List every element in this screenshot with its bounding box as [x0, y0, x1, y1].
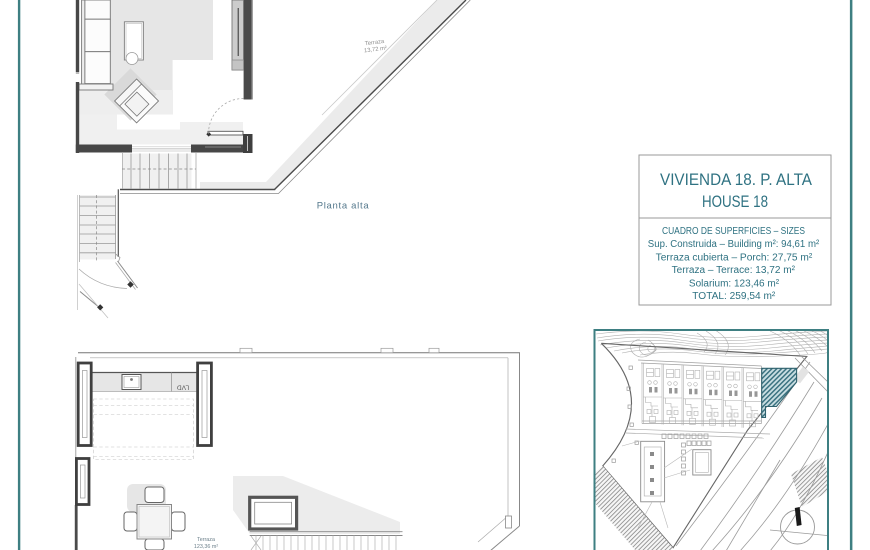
svg-text:HOUSE 18: HOUSE 18: [702, 192, 768, 211]
svg-text:Terraza cubierta – Porch: 27,: Terraza cubierta – Porch: 27,75 m²: [656, 252, 813, 263]
svg-text:Terraza: Terraza: [197, 537, 215, 543]
svg-text:Sup. Construida – Building m²: Sup. Construida – Building m²: 94,61 m²: [648, 239, 820, 250]
svg-text:VIVIENDA 18. P. ALTA: VIVIENDA 18. P. ALTA: [660, 170, 813, 189]
svg-text:LVD: LVD: [177, 384, 189, 391]
svg-text:123,36 m²: 123,36 m²: [194, 544, 218, 550]
svg-text:TOTAL: 259,54 m²: TOTAL: 259,54 m²: [692, 291, 776, 302]
svg-text:CUADRO DE SUPERFICIES – SIZES: CUADRO DE SUPERFICIES – SIZES: [662, 226, 805, 237]
svg-text:Solarium: 123,46 m²: Solarium: 123,46 m²: [689, 279, 780, 290]
svg-text:Terraza – Terrace: 13,72 m²: Terraza – Terrace: 13,72 m²: [672, 265, 796, 276]
svg-text:Planta alta: Planta alta: [317, 201, 370, 212]
